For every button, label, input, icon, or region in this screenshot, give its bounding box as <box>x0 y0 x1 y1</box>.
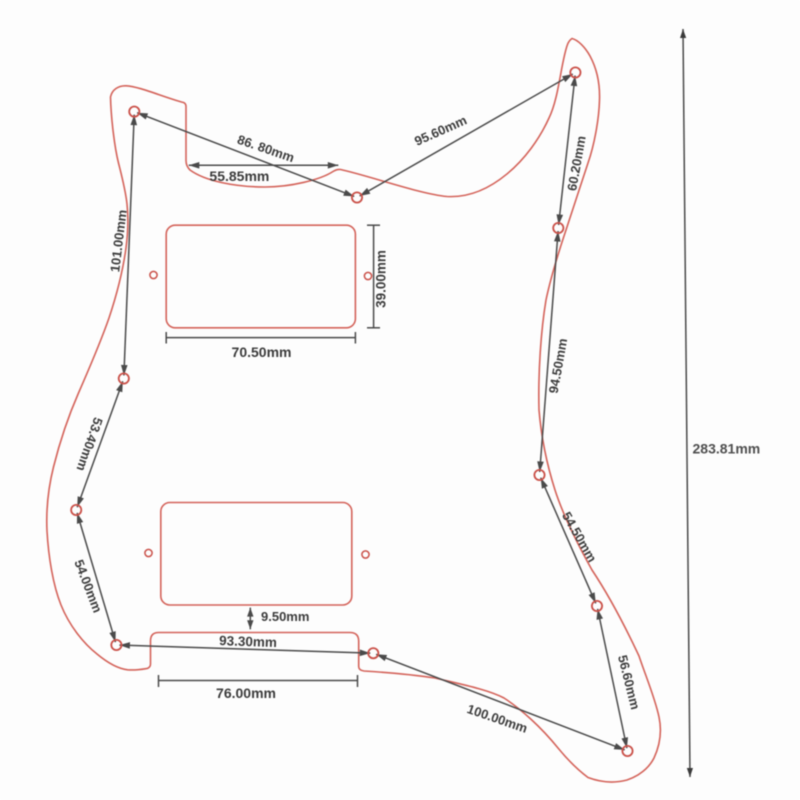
svg-text:70.50mm: 70.50mm <box>232 344 292 360</box>
svg-text:55.85mm: 55.85mm <box>209 168 269 184</box>
svg-text:76.00mm: 76.00mm <box>216 685 276 701</box>
svg-text:9.50mm: 9.50mm <box>261 609 309 624</box>
svg-text:39.00mm: 39.00mm <box>374 250 389 308</box>
svg-text:93.30mm: 93.30mm <box>219 633 277 650</box>
svg-text:283.81mm: 283.81mm <box>693 441 761 457</box>
